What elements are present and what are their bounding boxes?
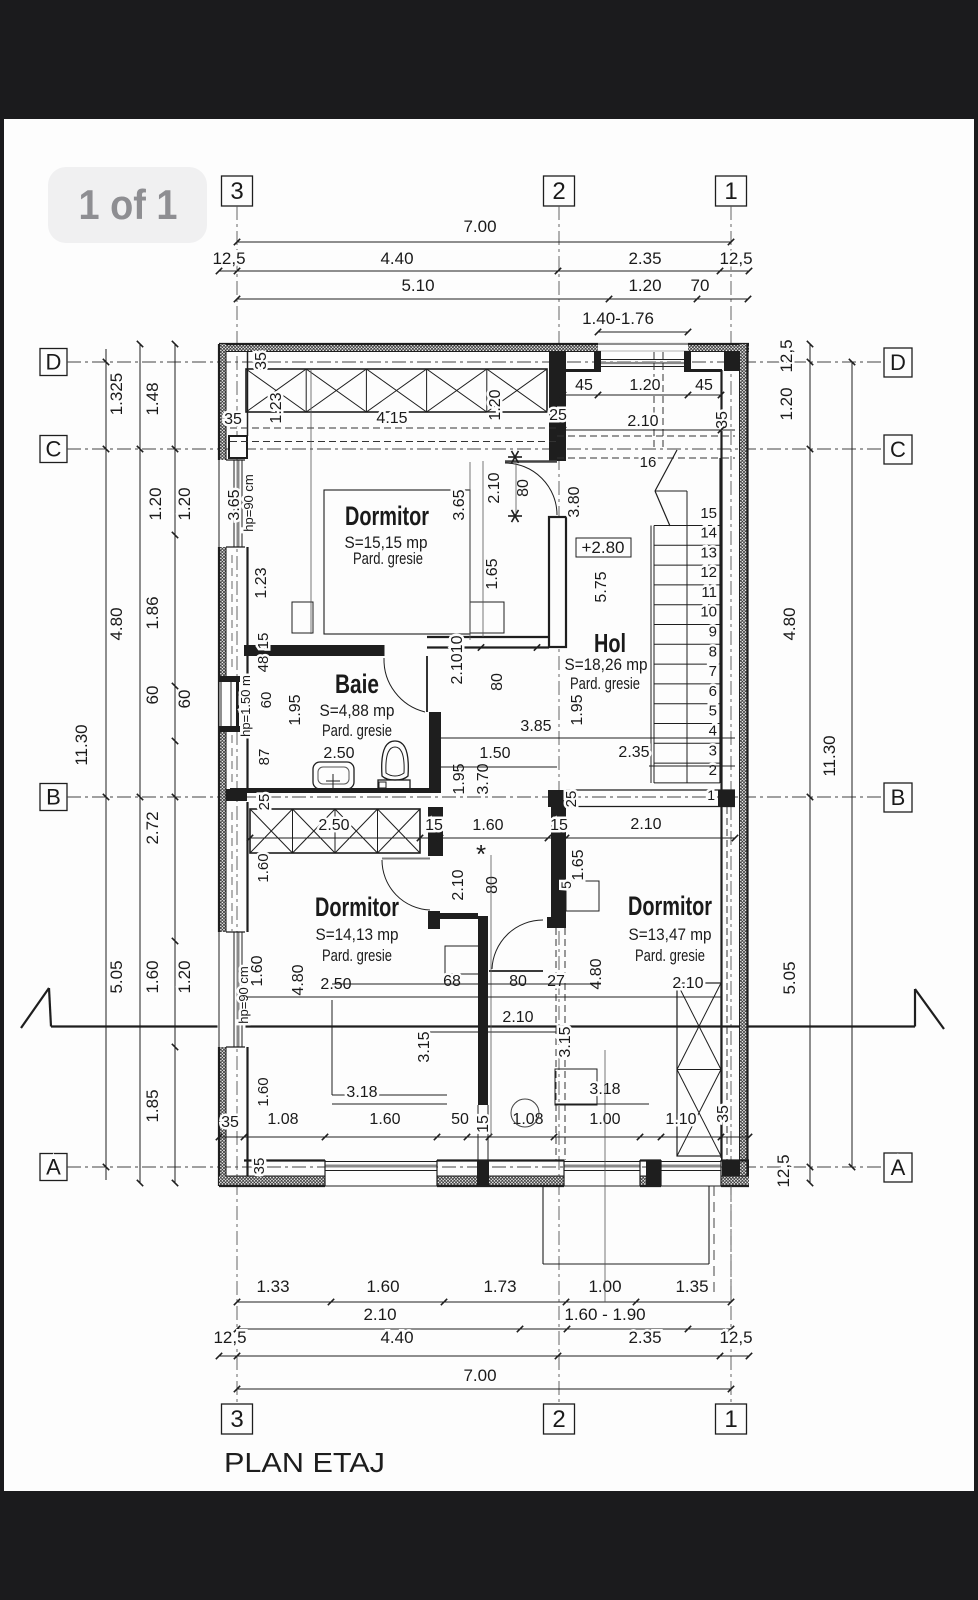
svg-text:4.80: 4.80 (290, 964, 307, 995)
svg-text:1.85: 1.85 (143, 1089, 162, 1122)
svg-text:S=4,88 mp: S=4,88 mp (320, 701, 395, 720)
svg-text:80: 80 (509, 973, 527, 990)
svg-text:A: A (46, 1155, 61, 1180)
svg-text:C: C (890, 437, 906, 462)
svg-text:1.33: 1.33 (256, 1277, 289, 1296)
svg-text:S=18,26 mp: S=18,26 mp (565, 655, 648, 674)
svg-text:Baie: Baie (335, 669, 379, 699)
svg-text:Dormitor: Dormitor (345, 501, 429, 531)
svg-text:D: D (46, 350, 62, 375)
svg-text:Pard. gresie: Pard. gresie (353, 549, 423, 568)
svg-text:1.20: 1.20 (175, 487, 194, 520)
svg-text:50: 50 (451, 1111, 469, 1128)
svg-text:2.35: 2.35 (618, 744, 649, 761)
svg-text:68: 68 (443, 973, 461, 990)
svg-text:15: 15 (255, 633, 272, 650)
svg-text:35: 35 (224, 411, 242, 428)
svg-text:1.95: 1.95 (287, 694, 304, 725)
svg-text:15: 15 (550, 817, 568, 834)
svg-text:1.73: 1.73 (483, 1277, 516, 1296)
svg-text:27: 27 (547, 973, 565, 990)
svg-text:2.10: 2.10 (486, 472, 503, 503)
svg-text:35: 35 (221, 1114, 239, 1131)
svg-text:1.60: 1.60 (255, 1077, 272, 1106)
svg-text:1.60: 1.60 (366, 1277, 399, 1296)
svg-text:2: 2 (552, 178, 565, 205)
svg-text:1.20: 1.20 (628, 276, 661, 295)
svg-text:35: 35 (714, 411, 731, 429)
svg-text:12: 12 (700, 564, 717, 581)
svg-text:14: 14 (700, 525, 717, 542)
svg-text:6: 6 (709, 683, 717, 700)
svg-text:4.80: 4.80 (780, 607, 799, 640)
svg-text:Hol: Hol (594, 628, 626, 658)
svg-text:3.85: 3.85 (520, 718, 551, 735)
svg-text:2.10: 2.10 (363, 1305, 396, 1324)
svg-text:3.15: 3.15 (557, 1026, 574, 1057)
svg-text:C: C (46, 437, 62, 462)
svg-text:Pard. gresie: Pard. gresie (322, 721, 392, 740)
svg-text:D: D (890, 350, 906, 375)
svg-text:+2.80: +2.80 (581, 538, 624, 557)
svg-text:1.35: 1.35 (675, 1277, 708, 1296)
svg-text:80: 80 (484, 876, 501, 894)
svg-text:10: 10 (700, 604, 717, 621)
svg-text:hp=1.50 m: hp=1.50 m (238, 675, 253, 737)
svg-text:45: 45 (575, 377, 593, 394)
svg-text:4.40: 4.40 (380, 249, 413, 268)
svg-text:45: 45 (695, 377, 713, 394)
svg-text:12,5: 12,5 (719, 249, 752, 268)
svg-text:3.65: 3.65 (451, 489, 468, 520)
svg-text:1.23: 1.23 (253, 567, 270, 598)
svg-text:1.60: 1.60 (143, 960, 162, 993)
svg-text:3.15: 3.15 (416, 1031, 433, 1062)
svg-text:1.86: 1.86 (143, 596, 162, 629)
svg-text:4: 4 (709, 723, 717, 740)
svg-text:11.30: 11.30 (820, 735, 839, 776)
svg-text:2.50: 2.50 (320, 976, 351, 993)
svg-text:Dormitor: Dormitor (315, 892, 399, 922)
svg-text:Dormitor: Dormitor (628, 891, 712, 921)
svg-text:B: B (891, 785, 906, 810)
svg-text:25: 25 (549, 407, 567, 424)
svg-text:1.48: 1.48 (143, 382, 162, 415)
svg-text:4.80: 4.80 (588, 958, 605, 989)
svg-text:3.70: 3.70 (475, 763, 492, 794)
svg-text:60: 60 (258, 692, 275, 709)
svg-text:1.325: 1.325 (107, 373, 126, 416)
svg-text:12,5: 12,5 (774, 1154, 793, 1187)
svg-text:7.00: 7.00 (463, 217, 496, 236)
svg-text:3: 3 (709, 742, 717, 759)
svg-text:80: 80 (489, 673, 506, 691)
svg-text:35: 35 (715, 1105, 732, 1123)
svg-text:4.80: 4.80 (107, 607, 126, 640)
svg-text:70: 70 (691, 276, 710, 295)
svg-text:A: A (891, 1155, 906, 1180)
svg-text:1.20: 1.20 (175, 960, 194, 993)
svg-text:1.20: 1.20 (146, 487, 165, 520)
svg-text:4.15: 4.15 (376, 410, 407, 427)
svg-text:2.10: 2.10 (630, 816, 661, 833)
svg-text:35: 35 (253, 352, 270, 370)
svg-text:13: 13 (700, 544, 717, 561)
svg-text:7.00: 7.00 (463, 1366, 496, 1385)
svg-text:80: 80 (515, 479, 532, 497)
svg-text:2.50: 2.50 (323, 745, 354, 762)
svg-text:Pard. gresie: Pard. gresie (635, 946, 705, 965)
svg-text:1.95: 1.95 (451, 763, 468, 794)
svg-text:15: 15 (425, 817, 443, 834)
svg-text:25: 25 (256, 794, 273, 811)
svg-text:1: 1 (707, 787, 715, 803)
svg-text:2.1010: 2.1010 (449, 635, 466, 684)
svg-text:1.95: 1.95 (569, 694, 586, 725)
svg-text:1.23: 1.23 (268, 392, 285, 423)
svg-text:*: * (476, 839, 486, 869)
svg-text:1: 1 (724, 1406, 737, 1433)
svg-text:1.65: 1.65 (484, 558, 501, 589)
svg-text:B: B (46, 785, 61, 810)
svg-text:Pard. gresie: Pard. gresie (570, 674, 640, 693)
svg-text:2.72: 2.72 (143, 811, 162, 844)
svg-text:1.40-1.76: 1.40-1.76 (582, 309, 654, 328)
svg-text:12,5: 12,5 (777, 339, 796, 372)
svg-text:12,5: 12,5 (213, 1328, 246, 1347)
svg-text:1.10: 1.10 (665, 1111, 696, 1128)
svg-text:48: 48 (255, 656, 272, 673)
svg-text:2.35: 2.35 (628, 1328, 661, 1347)
svg-text:1 of 1: 1 of 1 (79, 181, 178, 228)
svg-text:5.05: 5.05 (107, 960, 126, 993)
svg-text:3.80: 3.80 (566, 486, 583, 517)
svg-text:11.30: 11.30 (72, 724, 91, 765)
svg-text:15: 15 (475, 1115, 492, 1133)
svg-text:S=14,13 mp: S=14,13 mp (316, 925, 399, 944)
svg-text:1.50: 1.50 (479, 745, 510, 762)
svg-text:2.10: 2.10 (627, 413, 658, 430)
svg-text:1.08: 1.08 (267, 1111, 298, 1128)
svg-text:hp=90 cm: hp=90 cm (236, 966, 251, 1023)
svg-text:11: 11 (701, 584, 717, 601)
svg-text:5.10: 5.10 (401, 276, 434, 295)
svg-text:PLAN ETAJ: PLAN ETAJ (224, 1447, 385, 1478)
svg-text:2.10: 2.10 (672, 975, 703, 992)
svg-text:7: 7 (709, 663, 717, 680)
svg-text:3: 3 (230, 1406, 243, 1433)
svg-text:2: 2 (552, 1406, 565, 1433)
svg-text:Pard. gresie: Pard. gresie (322, 946, 392, 965)
svg-text:3.18: 3.18 (346, 1084, 377, 1101)
svg-text:12,5: 12,5 (212, 249, 245, 268)
svg-text:1.20: 1.20 (629, 377, 660, 394)
svg-text:4.40: 4.40 (380, 1328, 413, 1347)
svg-text:2: 2 (709, 762, 717, 779)
svg-text:87: 87 (256, 749, 273, 766)
svg-text:9: 9 (709, 624, 717, 641)
svg-text:2.35: 2.35 (628, 249, 661, 268)
svg-text:3: 3 (230, 178, 243, 205)
svg-text:5.75: 5.75 (593, 571, 610, 602)
svg-text:15: 15 (700, 505, 717, 522)
svg-text:1.60: 1.60 (255, 853, 272, 882)
svg-text:1.60: 1.60 (249, 955, 266, 986)
svg-text:35: 35 (251, 1158, 268, 1175)
svg-text:5: 5 (558, 881, 574, 889)
svg-text:5.05: 5.05 (780, 961, 799, 994)
svg-text:1.60: 1.60 (369, 1111, 400, 1128)
svg-text:16: 16 (640, 454, 657, 471)
svg-text:2.10: 2.10 (450, 869, 467, 900)
svg-text:1.20: 1.20 (487, 389, 504, 420)
svg-text:1.20: 1.20 (777, 387, 796, 420)
svg-text:1.65: 1.65 (570, 849, 587, 880)
svg-text:5: 5 (709, 703, 717, 720)
svg-text:8: 8 (709, 643, 717, 660)
svg-text:S=13,47 mp: S=13,47 mp (629, 925, 712, 944)
svg-text:2.50: 2.50 (318, 817, 349, 834)
svg-text:60: 60 (175, 690, 194, 709)
svg-text:2.10: 2.10 (502, 1009, 533, 1026)
svg-text:1: 1 (724, 178, 737, 205)
svg-text:12,5: 12,5 (719, 1328, 752, 1347)
svg-text:hp=90 cm: hp=90 cm (241, 474, 256, 531)
svg-text:1.60 - 1.90: 1.60 - 1.90 (564, 1305, 645, 1324)
svg-text:1.60: 1.60 (472, 817, 503, 834)
svg-text:60: 60 (143, 686, 162, 705)
svg-text:25: 25 (563, 791, 580, 808)
